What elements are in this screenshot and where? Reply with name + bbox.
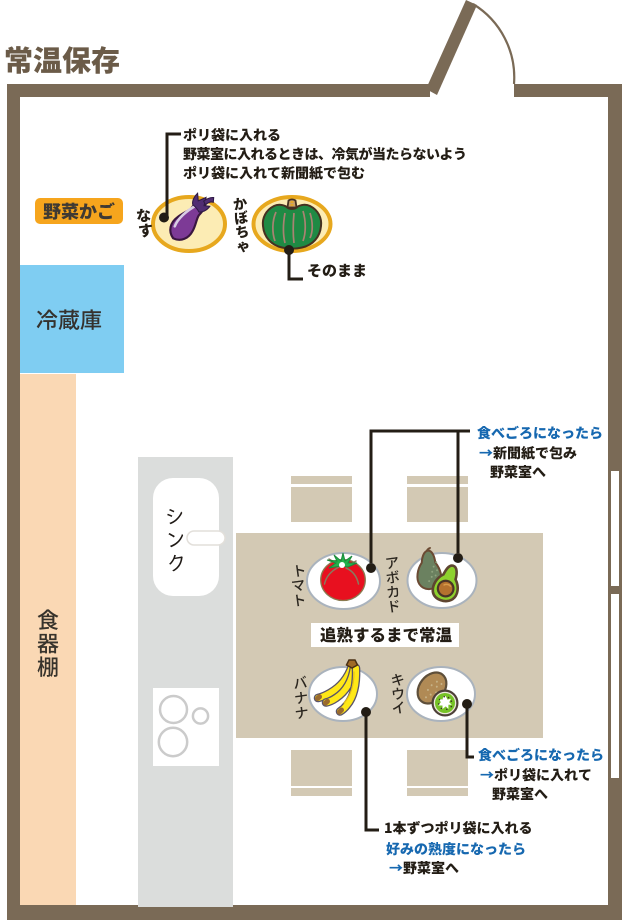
svg-text:ポリ袋に入れて新聞紙で包む: ポリ袋に入れて新聞紙で包む (183, 163, 365, 183)
svg-text:追熟するまで常温: 追熟するまで常温 (320, 622, 453, 646)
svg-text:ナ: ナ (293, 702, 310, 724)
svg-text:食べごろになったら: 食べごろになったら (477, 423, 603, 443)
svg-text:常温保存: 常温保存 (4, 38, 120, 80)
svg-text:1本ずつポリ袋に入れる: 1本ずつポリ袋に入れる (384, 818, 533, 838)
svg-text:ト: ト (291, 590, 308, 612)
svg-text:そのまま: そのまま (307, 260, 367, 281)
svg-text:イ: イ (390, 697, 407, 719)
svg-text:ゃ: ゃ (235, 235, 252, 257)
svg-text:→ポリ袋に入れて: →ポリ袋に入れて (480, 765, 592, 785)
svg-text:冷蔵庫: 冷蔵庫 (36, 303, 102, 335)
svg-text:野菜室へ: 野菜室へ (492, 784, 548, 804)
svg-text:野菜室へ: 野菜室へ (490, 462, 546, 482)
svg-text:→新聞紙で包み: →新聞紙で包み (479, 443, 577, 463)
svg-text:食べごろになったら: 食べごろになったら (478, 745, 604, 765)
svg-text:す: す (137, 219, 154, 241)
svg-text:棚: 棚 (37, 650, 59, 682)
svg-text:野菜かご: 野菜かご (43, 198, 115, 224)
svg-text:→野菜室へ: →野菜室へ (389, 858, 459, 878)
svg-text:好みの熟度になったら: 好みの熟度になったら (386, 839, 526, 859)
svg-text:ド: ド (385, 596, 402, 618)
svg-text:ポリ袋に入れる: ポリ袋に入れる (183, 125, 281, 145)
svg-text:野菜室に入れるときは、冷気が当たらないよう: 野菜室に入れるときは、冷気が当たらないよう (183, 144, 467, 164)
